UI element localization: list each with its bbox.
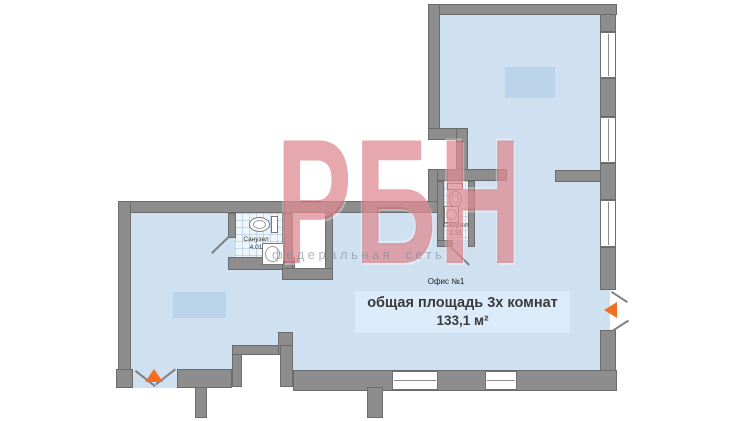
floor-plan: Санузел 4.01 Санузел 2.51 Офис №1 общая … [0, 0, 750, 421]
wall [367, 387, 383, 418]
wall [232, 345, 282, 355]
highlight-left-room [173, 292, 226, 318]
wall [600, 163, 616, 200]
wall [116, 369, 133, 388]
wall [228, 213, 236, 238]
wall [600, 78, 616, 117]
exterior-notch-bottom [242, 355, 280, 391]
door-leaf [612, 320, 629, 332]
wall [232, 350, 242, 387]
wall [280, 345, 293, 387]
window [600, 200, 616, 247]
wall [195, 387, 207, 418]
watermark-subtitle: федеральная сеть [272, 247, 445, 262]
wall [118, 201, 131, 388]
wall [177, 369, 232, 388]
wall [293, 370, 617, 391]
area-value: 133,1 м² [355, 313, 570, 328]
wall [600, 14, 616, 32]
wall [428, 4, 617, 15]
wall [555, 170, 601, 182]
entrance-arrow-icon [145, 369, 163, 382]
window [392, 371, 438, 390]
window [600, 32, 616, 78]
highlight-top-right-room [505, 67, 555, 98]
entrance-arrow-icon [604, 302, 617, 318]
window [600, 117, 616, 163]
watermark-brand: РБН [276, 113, 524, 291]
bathroom-name: Санузел [243, 236, 268, 243]
bathroom-area: 4.01 [250, 244, 263, 251]
wall [600, 247, 616, 290]
toilet-bowl-icon [253, 220, 266, 229]
window [485, 371, 517, 390]
